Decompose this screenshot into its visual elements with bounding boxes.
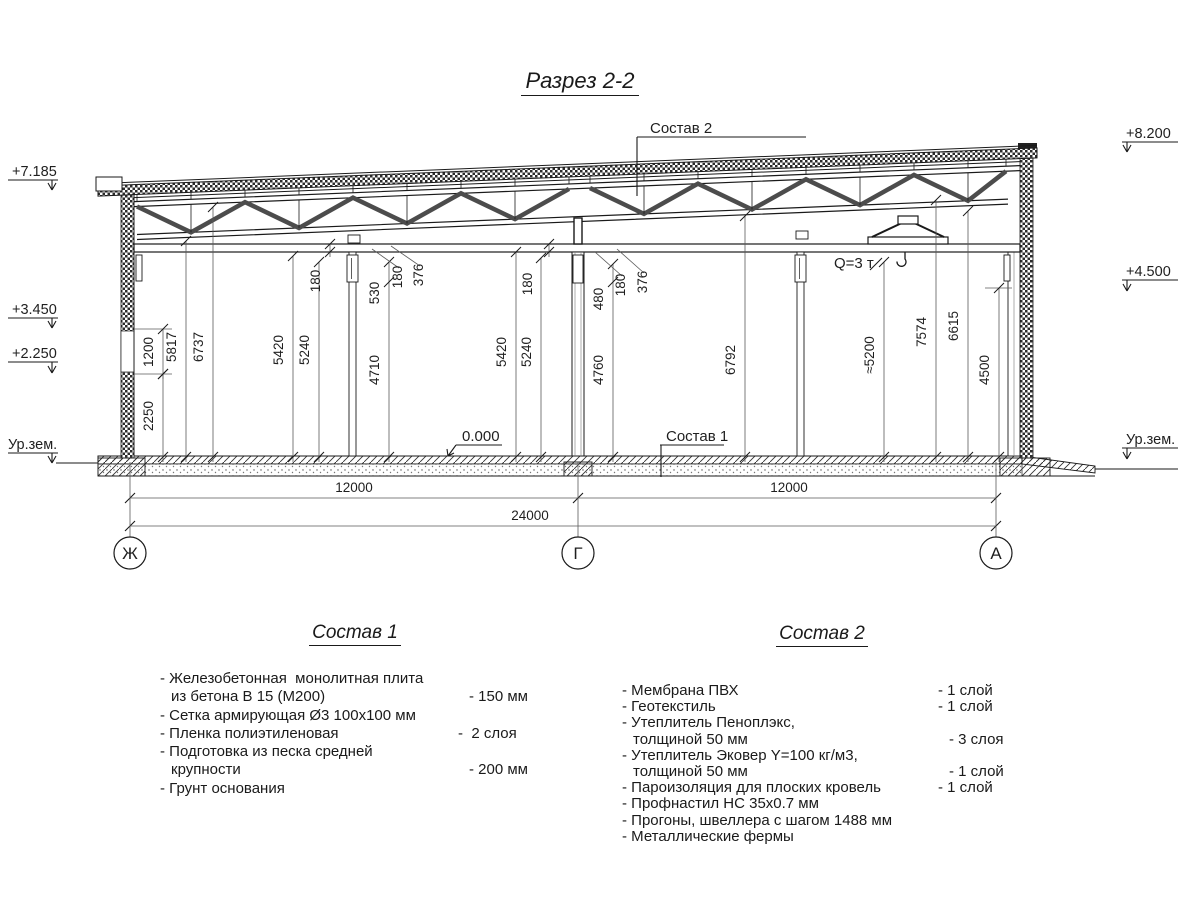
dim-label: ≈5200 [862,336,877,373]
elevation-flag-icon [1122,142,1178,152]
note-text: - Грунт основания [160,780,458,798]
note-text: - Подготовка из песка средней [160,743,458,761]
callout-text: Состав 2 [650,120,712,137]
intermediate-column-right [797,252,804,456]
callout-leader [447,445,502,456]
note-line: - Геотекстиль- 1 слой [622,699,1022,715]
elevation-value: +7.185 [12,164,57,180]
note-line: - Мембрана ПВХ- 1 слой [622,683,1022,699]
callout-crane-capacity: Q=3 т [834,255,882,272]
note-text: - Сетка армирующая Ø3 100x100 мм [160,707,458,725]
dim-label: 2250 [141,401,156,431]
dim-label: 6615 [946,311,961,341]
note-line: - Металлические фермы [622,829,1022,845]
dim-label: 4760 [591,355,606,385]
dim-leader [595,252,622,276]
note-value: - 1 слой [938,780,993,796]
building-section [56,143,1178,476]
note-line: - Утеплитель Пеноплэкс, [622,715,1022,731]
elevation-flag-icon [1122,280,1178,291]
sostav2-notes: Состав 2 - Мембрана ПВХ- 1 слой- Геотекс… [622,623,1022,853]
elevation-mark-ground-right: Ур.зем. [1122,432,1178,459]
axis-zh: Ж [114,462,146,569]
dim-label: 5240 [297,335,312,365]
axis-a: А [980,462,1012,569]
dim-line [130,498,996,526]
dim-label: 530 [367,282,382,305]
sand-bed [98,464,1022,476]
elevation-mark-7185: +7.185 [8,164,58,190]
dim-label: 5420 [494,337,509,367]
dim-12000-left: 12000 [335,480,373,495]
intermediate-column-left [349,252,356,456]
note-line: - Железобетонная монолитная плита [160,670,550,688]
elevation-value: Ур.зем. [8,437,57,453]
axis-letter: А [990,544,1002,563]
left-wall-panel-joint [121,331,134,372]
note-line: крупности- 200 мм [160,761,550,779]
dim-label: 180 [613,274,628,297]
note-line: - Сетка армирующая Ø3 100x100 мм [160,707,550,725]
note-value: - 2 слоя [458,725,517,743]
roof-fascia [96,177,122,191]
elevation-value: +2.250 [12,346,57,362]
elevation-flag-icon [8,453,58,463]
dim-label: 4500 [977,355,992,385]
dim-label: 180 [308,270,323,293]
crane-hook-icon [897,252,906,266]
note-text: крупности [160,761,469,779]
note-text: - Железобетонная монолитная плита [160,670,458,688]
note-line: из бетона В 15 (М200)- 150 мм [160,688,550,706]
note-text: - Металлические фермы [622,829,938,845]
dim-leader [617,249,644,273]
dim-tick [125,493,1001,531]
elevation-value: Ур.зем. [1126,432,1175,448]
note-value: - 200 мм [469,761,528,779]
horizontal-dimensions: 12000 12000 24000 [125,480,1001,531]
note-value: - 150 мм [469,688,528,706]
chord-seat-left [348,235,360,243]
elevation-mark-4500: +4.500 [1122,264,1178,291]
elevation-flag-icon [8,318,58,328]
wall-bracket-right [1004,255,1010,281]
note-line: - Прогоны, швеллера с шагом 1488 мм [622,813,1022,829]
center-column-head [574,218,582,244]
note-text: - Утеплитель Пеноплэкс, [622,715,938,731]
hanger-stub [795,255,806,282]
note-value: - 3 слоя [949,732,1004,748]
dim-label: 1200 [141,337,156,367]
dim-label: 5240 [519,337,534,367]
hanger-stub [347,255,358,282]
callout-text: Состав 1 [666,428,728,445]
note-text: - Профнастил НС 35x0.7 мм [622,796,938,812]
note-text: - Геотекстиль [622,699,938,715]
dim-label: 376 [635,271,650,294]
note-text: из бетона В 15 (М200) [160,688,469,706]
roof-membrane [98,145,1037,183]
note-text: - Пленка полиэтиленовая [160,725,458,743]
chord-seat-right [796,231,808,239]
note-text: - Мембрана ПВХ [622,683,938,699]
note-text: - Утеплитель Эковер Y=100 кг/м3, [622,748,938,764]
note-text: толщиной 50 мм [622,764,949,780]
tie-beam [134,244,1020,252]
dim-label: 180 [390,266,405,289]
axis-letter: Г [573,544,582,563]
note-line: - Профнастил НС 35x0.7 мм [622,796,1022,812]
left-wall [121,186,134,458]
note-line: - Грунт основания [160,780,550,798]
elevation-mark-3450: +3.450 [8,302,58,328]
dim-label: 4710 [367,355,382,385]
right-wall [1020,148,1033,458]
callout-zero-level: 0.000 [447,428,502,456]
callout-text: 0.000 [462,428,500,445]
elevation-mark-2250: +2.250 [8,346,58,373]
dim-label: 6737 [191,332,206,362]
note-line: - Пленка полиэтиленовая- 2 слоя [160,725,550,743]
note-line: - Утеплитель Эковер Y=100 кг/м3, [622,748,1022,764]
foundation-block [98,458,145,476]
dim-label: 7574 [914,316,929,347]
axis-g: Г [562,462,594,569]
sostav1-heading: Состав 1 [160,622,550,644]
elevation-value: +4.500 [1126,264,1171,280]
note-value: - 1 слой [938,699,993,715]
sostav2-heading-text: Состав 2 [776,623,868,647]
section-drawing: +7.185 +3.450 +2.250 Ур.зем. +8.200 +4.5… [0,0,1200,620]
sostav1-heading-text: Состав 1 [309,622,401,646]
elevation-value: +8.200 [1126,126,1171,142]
sostav2-heading: Состав 2 [622,623,1022,645]
hoist-carriage [898,216,918,224]
dim-label: 480 [591,288,606,311]
center-column-stub [573,255,583,283]
dim-label: 5817 [164,332,179,362]
dim-24000: 24000 [511,508,549,523]
note-line: толщиной 50 мм- 3 слоя [622,732,1022,748]
dim-label: 5420 [271,335,286,365]
note-text: - Пароизоляция для плоских кровель [622,780,938,796]
elevation-mark-8200: +8.200 [1122,126,1178,152]
elevation-flag-icon [8,180,58,190]
note-value: - 1 слой [938,683,993,699]
axis-letter: Ж [122,544,138,563]
note-value: - 1 слой [949,764,1004,780]
dim-label: 6792 [723,345,738,375]
note-line: - Подготовка из песка средней [160,743,550,761]
wall-bracket-left [136,255,142,281]
sostav1-lines: - Железобетонная монолитная плитаиз бето… [160,670,550,798]
dim-12000-right: 12000 [770,480,808,495]
dim-label: 376 [411,264,426,287]
note-line: толщиной 50 мм- 1 слой [622,764,1022,780]
elevation-value: +3.450 [12,302,57,318]
elevation-mark-ground-left: Ур.зем. [8,437,58,463]
elevation-flag-icon [8,362,58,373]
callout-text: Q=3 т [834,255,874,272]
note-text: - Прогоны, швеллера с шагом 1488 мм [622,813,938,829]
drawing-sheet: Разрез 2-2 +7.185 +3.450 [0,0,1200,900]
sostav2-lines: - Мембрана ПВХ- 1 слой- Геотекстиль- 1 с… [622,683,1022,845]
note-line: - Пароизоляция для плоских кровель- 1 сл… [622,780,1022,796]
dim-label: 180 [520,273,535,296]
elevation-flag-icon [1122,448,1178,459]
note-text: толщиной 50 мм [622,732,949,748]
sostav1-notes: Состав 1 - Железобетонная монолитная пли… [160,622,550,842]
